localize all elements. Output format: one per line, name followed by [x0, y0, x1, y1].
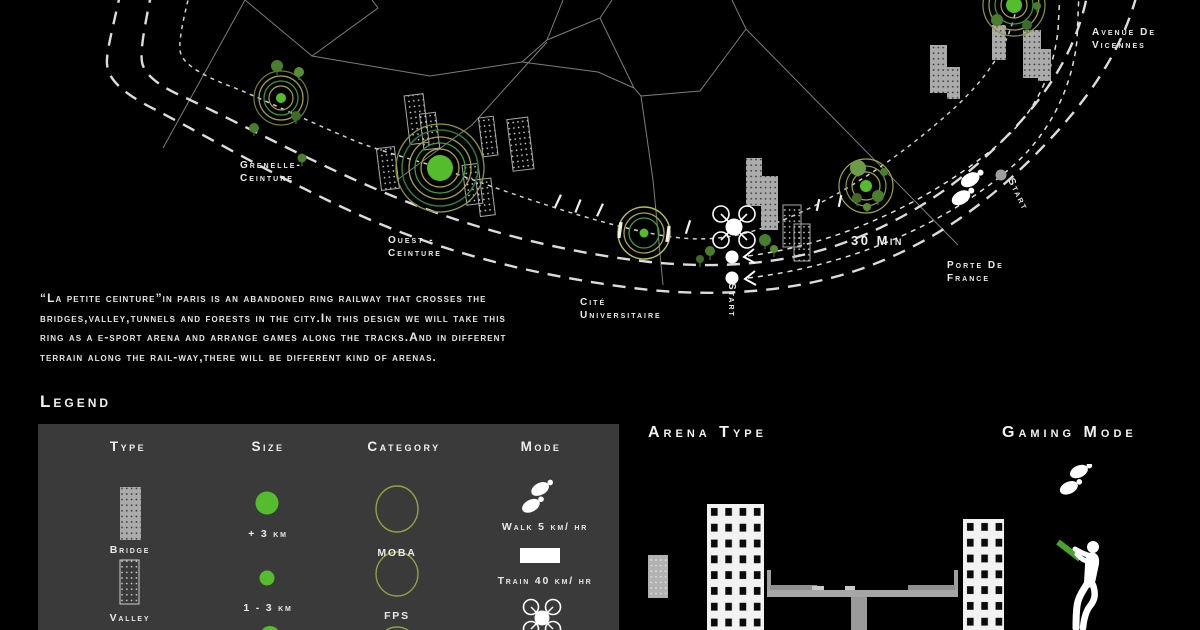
map-label-duration: 30 Min [851, 233, 904, 248]
railway-ring [107, 0, 1138, 293]
building-icon [947, 67, 960, 99]
train-icon [520, 548, 560, 563]
map-label-start-cite: Start [725, 283, 738, 318]
large-green-dot-icon [256, 492, 279, 515]
building-icon [794, 224, 810, 261]
bridge-building-icon [120, 487, 141, 540]
legend-label-size-small: 1 - 3 km [193, 602, 343, 614]
tree-icons [249, 2, 1041, 267]
building-icon [478, 116, 498, 157]
arena-markers [254, 0, 1045, 259]
legend-label-train: Train 40 km/ hr [470, 575, 619, 587]
map-label-grenelle: Grenelle-Ceinture [240, 159, 302, 185]
map-label-ouest: Ouest -Ceinture [388, 234, 442, 260]
building-icon [507, 117, 534, 171]
arena-type-header: Arena Type [648, 424, 767, 442]
start-dot [726, 251, 739, 264]
gaming-mode-header: Gaming Mode [1002, 424, 1137, 442]
legend-panel: Type Size Category Mode [38, 424, 619, 630]
map-label-cite: CitéUniversitaire [580, 296, 662, 322]
building-icon [1038, 49, 1051, 81]
footsteps-icon [1053, 464, 1099, 497]
footsteps-icon [515, 477, 561, 516]
tower-building-right [963, 519, 1004, 630]
legend-label-moba: MOBA [322, 547, 472, 559]
bridge-deck [767, 570, 958, 630]
legend-label-walk: Walk 5 km/ hr [470, 521, 619, 533]
player-silhouette [1046, 538, 1136, 630]
arena-marker-cite [618, 207, 670, 259]
drone-icon [524, 600, 561, 630]
small-green-dot-icon [260, 571, 275, 586]
street-network [163, 0, 958, 285]
building-icon [930, 45, 947, 93]
legend-title: Legend [40, 392, 111, 412]
start-points [726, 249, 757, 285]
legend-label-bridge: Bridge [55, 544, 205, 556]
small-building-icon [648, 555, 668, 598]
tower-building-left [707, 504, 764, 630]
circle-outline-icon [376, 486, 418, 532]
legend-label-valley: Valley [55, 612, 205, 624]
railway-inner-track [180, 0, 1019, 239]
footsteps-icon [944, 166, 1007, 208]
building-icon [746, 158, 762, 206]
green-dot-partial [260, 626, 280, 630]
building-icon [761, 176, 778, 230]
building-icon [476, 178, 495, 217]
map-label-porte: Porte DeFrance [947, 259, 1004, 285]
arena-marker-ouest [396, 124, 484, 212]
waypoint-dot [996, 170, 1007, 181]
building-icon [992, 25, 1006, 60]
gaming-footsteps [1050, 464, 1120, 504]
legend-label-size-large: + 3 km [193, 528, 343, 540]
bridge-pier [851, 597, 867, 630]
map-label-avenue: Avenue DeVicennes [1092, 26, 1156, 52]
poster-root: { "map": { "labels": { "grenelle": ["Gre… [0, 0, 1200, 630]
drone-icon [713, 206, 755, 248]
description-text: “La petite ceinture”in paris is an aband… [40, 289, 532, 367]
railway-outer-track [107, 0, 1138, 293]
legend-label-fps: FPS [322, 610, 472, 622]
arena-cross-section [620, 490, 1030, 630]
valley-building-icon [120, 560, 139, 604]
railway-middle-track [142, 0, 1088, 265]
